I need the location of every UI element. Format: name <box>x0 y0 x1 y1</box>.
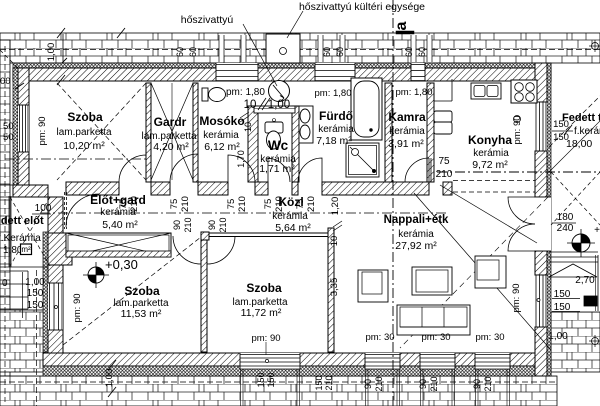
svg-text:90: 90 <box>472 379 482 389</box>
svg-text:50: 50 <box>3 121 14 132</box>
svg-text:1,71 m²: 1,71 m² <box>259 163 295 175</box>
svg-text:150: 150 <box>553 119 569 130</box>
svg-text:kerámia: kerámia <box>203 130 239 141</box>
svg-text:210: 210 <box>180 196 191 212</box>
svg-text:+: + <box>594 225 600 236</box>
svg-text:f.Kerámia: f.Kerámia <box>0 233 41 244</box>
svg-text:pm: 30: pm: 30 <box>421 332 450 343</box>
svg-text:pm: 90: pm: 90 <box>512 115 523 144</box>
svg-text:Szoba: Szoba <box>67 110 103 124</box>
svg-text:10: 10 <box>243 122 253 132</box>
svg-text:10: 10 <box>244 99 257 111</box>
svg-text:75: 75 <box>263 199 274 210</box>
svg-text:1,70: 1,70 <box>236 150 246 168</box>
svg-text:60: 60 <box>404 47 414 57</box>
svg-text:pm: 1,80: pm: 1,80 <box>396 87 433 98</box>
svg-text:150: 150 <box>256 372 266 387</box>
svg-text:Wc: Wc <box>268 138 289 153</box>
svg-text:lam.parketta: lam.parketta <box>56 127 111 138</box>
svg-text:Konyha: Konyha <box>468 133 512 147</box>
svg-text:hőszivattyú kültéri egysége: hőszivattyú kültéri egysége <box>299 1 425 13</box>
svg-text:3,91 m²: 3,91 m² <box>388 138 424 150</box>
svg-text:75: 75 <box>295 199 306 210</box>
svg-text:pm: 1,80: pm: 1,80 <box>226 87 265 98</box>
svg-text:210: 210 <box>436 169 453 180</box>
svg-text:a: a <box>393 21 410 30</box>
svg-text:75: 75 <box>226 199 237 210</box>
svg-text:pm: 30: pm: 30 <box>475 332 504 343</box>
svg-text:m²: m² <box>21 245 31 254</box>
svg-text:75: 75 <box>169 199 180 210</box>
svg-text:100: 100 <box>35 203 52 214</box>
svg-text:00: 00 <box>0 76 11 87</box>
svg-text:150: 150 <box>266 372 276 387</box>
svg-text:Szoba: Szoba <box>124 284 160 298</box>
svg-text:pm: 90: pm: 90 <box>251 333 280 344</box>
svg-text:150: 150 <box>314 375 324 390</box>
svg-text:60: 60 <box>417 47 427 57</box>
svg-text:11,53 m²: 11,53 m² <box>121 308 162 320</box>
svg-text:210: 210 <box>274 196 285 212</box>
svg-text:150: 150 <box>554 302 571 313</box>
svg-text:60: 60 <box>175 47 185 57</box>
svg-text:210: 210 <box>129 196 140 212</box>
svg-text:Kamra: Kamra <box>388 110 426 124</box>
svg-text:240: 240 <box>557 223 574 234</box>
svg-text:90: 90 <box>172 220 182 230</box>
svg-text:150: 150 <box>27 288 44 299</box>
svg-text:9,72 m²: 9,72 m² <box>472 159 508 171</box>
svg-text:7,18 m²: 7,18 m² <box>316 135 352 147</box>
svg-text:Mosóko: Mosóko <box>199 114 244 128</box>
svg-text:3,35: 3,35 <box>329 278 340 297</box>
svg-text:11,72 m²: 11,72 m² <box>241 307 282 319</box>
svg-text:180: 180 <box>557 212 574 223</box>
svg-text:kerámia: kerámia <box>389 126 425 137</box>
svg-text:Nappali+étk: Nappali+étk <box>384 214 449 226</box>
svg-text:hőszivattyú: hőszivattyú <box>181 14 234 26</box>
svg-text:10,20 m²: 10,20 m² <box>63 140 105 152</box>
svg-text:Fürdő: Fürdő <box>319 109 353 123</box>
svg-text:75: 75 <box>118 199 129 210</box>
svg-text:pm: 90: pm: 90 <box>511 283 522 312</box>
svg-text:1,00: 1,00 <box>25 277 45 288</box>
svg-text:kerámia: kerámia <box>318 124 354 135</box>
svg-text:210: 210 <box>324 375 334 390</box>
svg-text:2,70: 2,70 <box>575 275 595 286</box>
svg-text:pm: 1,80: pm: 1,80 <box>315 88 352 99</box>
svg-text:1,00: 1,00 <box>548 331 568 342</box>
svg-text:90: 90 <box>418 379 428 389</box>
svg-text:4,20 m²: 4,20 m² <box>153 141 189 153</box>
svg-text:75: 75 <box>438 156 450 167</box>
svg-text:210: 210 <box>237 196 248 212</box>
svg-text:50: 50 <box>3 132 14 143</box>
svg-text:60: 60 <box>188 47 198 57</box>
svg-text:0: 0 <box>2 278 8 289</box>
svg-text:5,40 m²: 5,40 m² <box>102 219 138 231</box>
svg-text:pm: 90: pm: 90 <box>37 116 48 145</box>
svg-text:kerámia: kerámia <box>398 229 434 240</box>
svg-text:90: 90 <box>363 379 373 389</box>
svg-text:60: 60 <box>335 47 345 57</box>
svg-text:210: 210 <box>218 217 228 232</box>
svg-text:150: 150 <box>554 289 571 300</box>
svg-text:f.kerám: f.kerám <box>574 126 600 137</box>
svg-text:60: 60 <box>322 47 332 57</box>
svg-text:5,64 m²: 5,64 m² <box>275 222 311 234</box>
svg-text:1,00: 1,00 <box>46 43 57 62</box>
svg-text:210: 210 <box>374 376 384 391</box>
svg-text:pm: 30: pm: 30 <box>365 332 394 343</box>
svg-text:150: 150 <box>27 300 44 311</box>
svg-text:Fedett előt: Fedett előt <box>0 215 44 227</box>
svg-text:210: 210 <box>183 217 193 232</box>
svg-text:150: 150 <box>553 132 569 143</box>
svg-text:1,00: 1,00 <box>104 369 115 388</box>
svg-text:210: 210 <box>306 196 317 212</box>
svg-text:210: 210 <box>483 376 493 391</box>
svg-text:Gardr: Gardr <box>154 115 187 129</box>
svg-text:Szoba: Szoba <box>246 281 282 295</box>
svg-text:18,00: 18,00 <box>566 138 592 150</box>
svg-text:pm: 90: pm: 90 <box>72 293 83 322</box>
svg-text:90: 90 <box>207 220 217 230</box>
svg-text:10: 10 <box>329 236 340 247</box>
svg-text:210: 210 <box>429 376 439 391</box>
svg-text:1,20: 1,20 <box>330 197 341 216</box>
svg-text:6,12 m²: 6,12 m² <box>204 141 240 153</box>
svg-text:1,00: 1,00 <box>268 99 290 111</box>
svg-text:+0,30: +0,30 <box>105 257 138 272</box>
svg-text:27,92 m²: 27,92 m² <box>395 240 437 252</box>
svg-text:kerámia: kerámia <box>473 148 509 159</box>
